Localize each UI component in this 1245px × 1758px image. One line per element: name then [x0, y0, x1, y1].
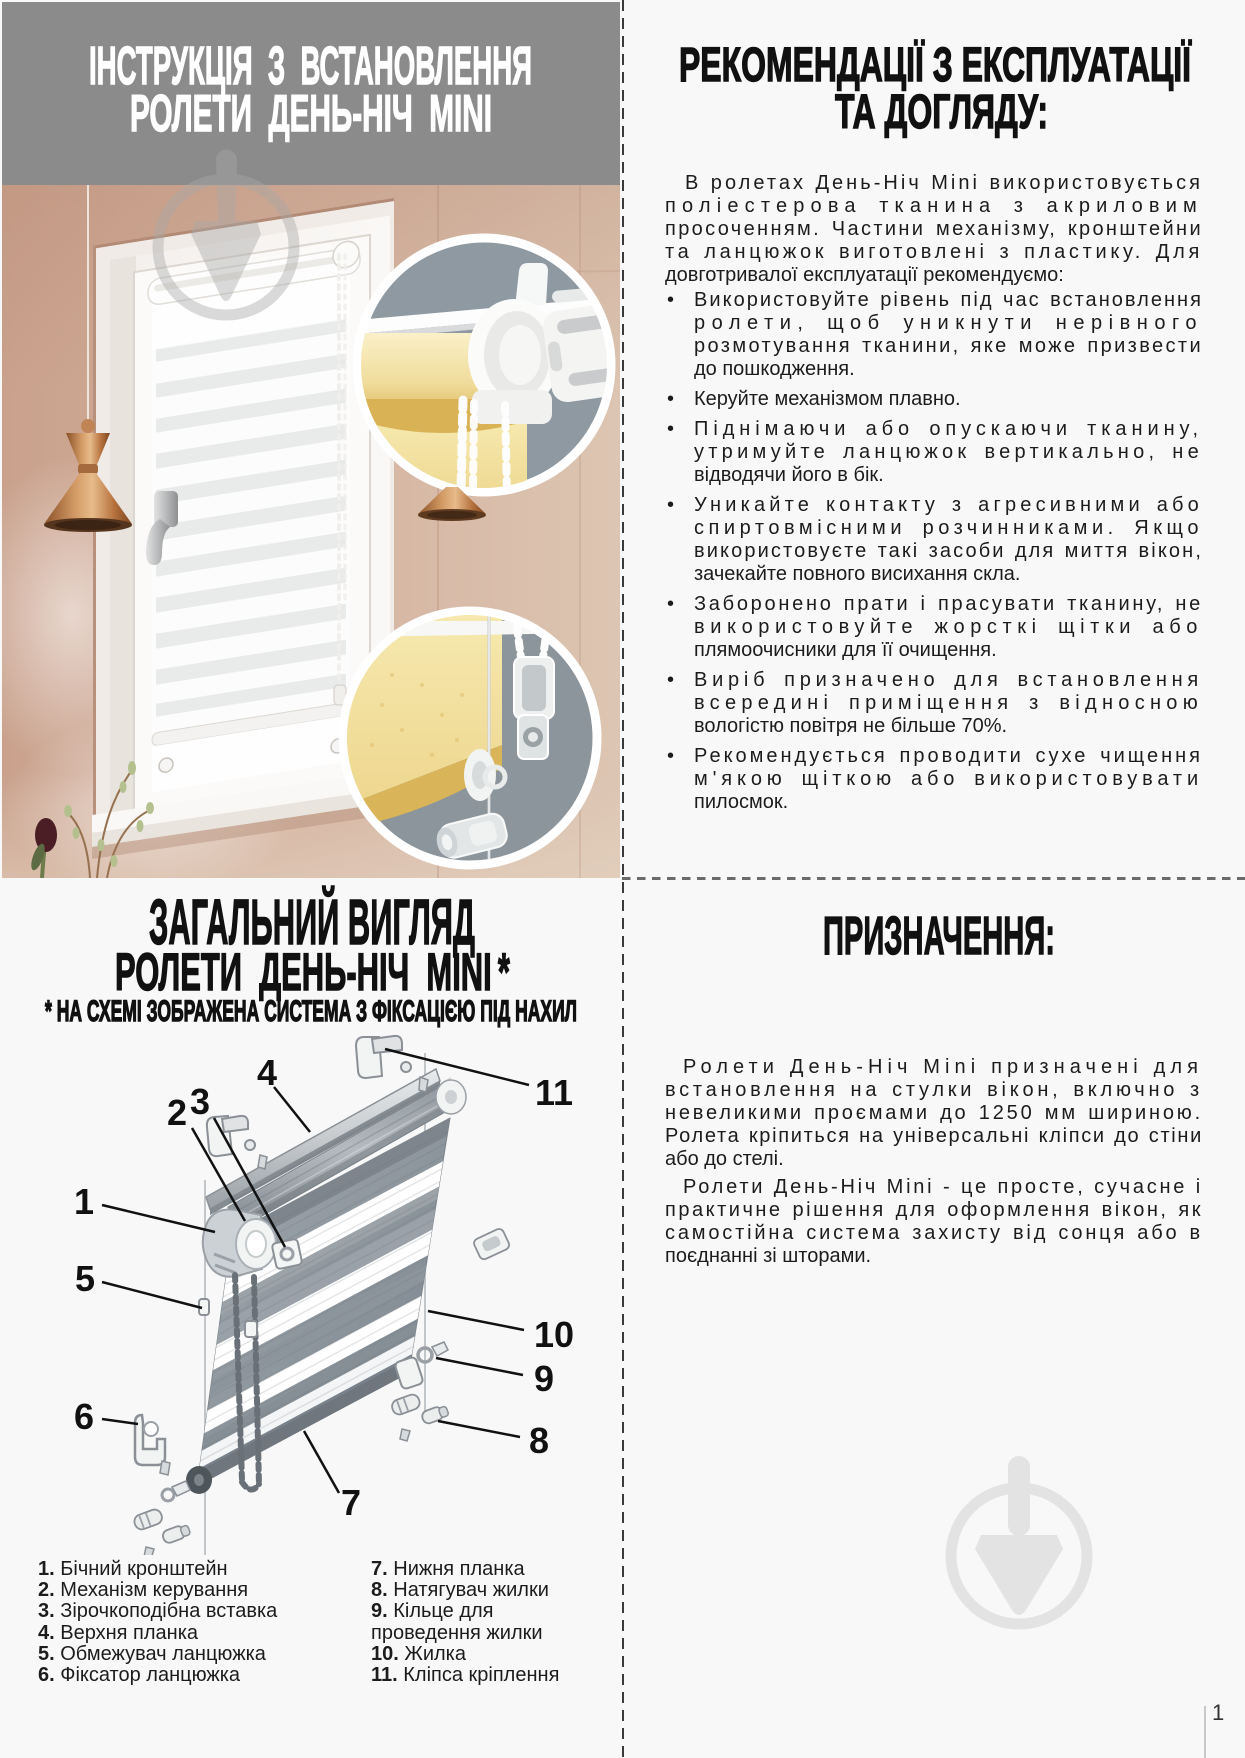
svg-text:5: 5	[75, 1258, 95, 1299]
svg-text:4: 4	[257, 1052, 277, 1093]
svg-text:9: 9	[534, 1358, 554, 1399]
svg-text:11: 11	[535, 1072, 573, 1113]
svg-text:1: 1	[74, 1181, 94, 1222]
svg-text:6: 6	[74, 1396, 94, 1437]
svg-text:2: 2	[167, 1092, 187, 1133]
svg-text:8: 8	[529, 1420, 549, 1461]
svg-text:3: 3	[190, 1081, 210, 1122]
svg-text:7: 7	[341, 1482, 361, 1523]
svg-text:10: 10	[534, 1314, 574, 1355]
